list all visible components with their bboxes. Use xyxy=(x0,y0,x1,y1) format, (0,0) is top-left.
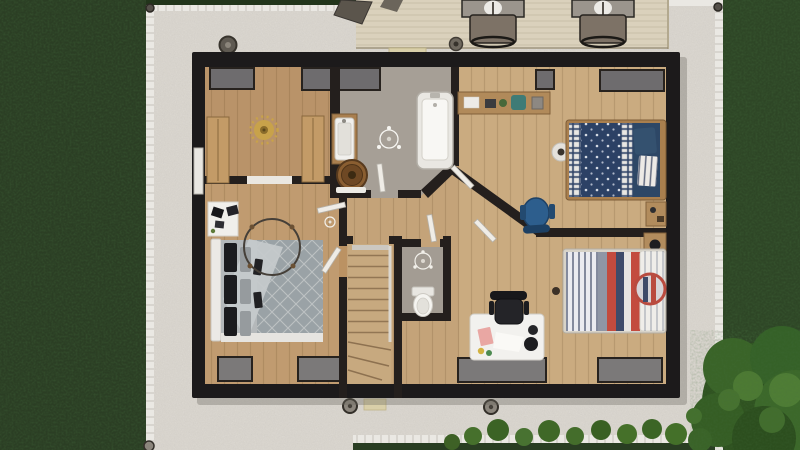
wc-light-center xyxy=(421,259,425,263)
bathtub-drain xyxy=(433,103,437,107)
stairs-landing xyxy=(352,245,389,250)
bathroom-light-dot xyxy=(397,145,401,149)
bush xyxy=(617,424,637,444)
cushion-stripe-navy xyxy=(643,277,648,302)
ring-clip xyxy=(291,264,296,269)
opening-wc-door xyxy=(421,239,440,247)
floorplan-screenshot xyxy=(0,0,800,450)
ring-clip xyxy=(248,264,253,269)
nightstand-item xyxy=(657,216,664,222)
attic-panel xyxy=(536,70,554,89)
bush xyxy=(538,420,560,442)
attic-panel xyxy=(218,357,252,381)
hall-light-center xyxy=(329,221,332,224)
stairs-floor xyxy=(348,244,391,384)
bed-stripe-pinzone-pattern xyxy=(566,252,598,331)
grass-texture-left xyxy=(0,0,146,450)
cushion-stripe-red xyxy=(651,275,656,303)
attic-panel xyxy=(302,68,380,90)
shelf-frame xyxy=(532,97,543,109)
nightstand-blue-room xyxy=(646,202,666,226)
shelf-box xyxy=(485,99,496,108)
tile-border-left xyxy=(146,5,154,450)
ring-clip xyxy=(250,225,255,230)
ring-clip xyxy=(290,225,295,230)
tile-border-top-right xyxy=(668,0,715,6)
pillow-black xyxy=(224,243,237,272)
wall-stair-stub-left xyxy=(339,236,353,244)
vent-cap-center xyxy=(225,42,231,48)
pillow-black xyxy=(224,275,237,304)
bed-stripe-red xyxy=(607,252,616,331)
pillow-black xyxy=(224,307,237,336)
round-rug-center xyxy=(558,149,565,156)
bush xyxy=(515,428,533,446)
grass-bottom-strip xyxy=(353,442,715,450)
attic-panel xyxy=(458,358,546,382)
wall-wc-east xyxy=(443,236,451,321)
toilet-seat xyxy=(417,298,429,314)
attic-panel xyxy=(598,358,662,382)
sunburst-light-dot xyxy=(263,129,266,132)
office-chair-black-arm xyxy=(524,301,529,315)
bathtub-faucet xyxy=(430,93,440,98)
bed-left-headboard xyxy=(211,239,221,341)
bed-blue-plaid-left-pattern xyxy=(569,123,581,197)
wall-stair-stub-right xyxy=(389,236,402,244)
scene-layers xyxy=(0,0,800,450)
bed-blue-plaid-right-pattern xyxy=(621,123,633,197)
bollard-light-4 xyxy=(146,4,154,12)
plant-dot xyxy=(211,229,215,233)
bush xyxy=(464,427,482,445)
bed-blue-pillow xyxy=(633,127,657,155)
office-chair-black-seat xyxy=(495,299,523,324)
pillow-gray xyxy=(240,311,251,336)
office-chair-blue-seat xyxy=(523,198,549,228)
deck-light-center xyxy=(454,42,459,47)
pillow-gray xyxy=(240,279,251,304)
wc-light-dot xyxy=(421,250,424,253)
bush xyxy=(566,427,584,445)
bed-blue-duvet-dots xyxy=(581,123,621,197)
tree-texture xyxy=(690,330,800,450)
shelf-books xyxy=(464,97,479,108)
bed-stripe-gray xyxy=(598,252,607,331)
attic-panel xyxy=(600,70,664,91)
window-left-wall xyxy=(194,148,203,194)
wc-light-dot xyxy=(413,265,416,268)
bath-mat xyxy=(336,187,366,193)
floor-dot xyxy=(552,287,560,295)
pillow-small xyxy=(253,292,263,309)
wc-light-dot xyxy=(429,265,432,268)
bathroom-light-center xyxy=(387,137,391,141)
desk-speaker xyxy=(528,325,538,335)
bed-stripe-white xyxy=(624,252,631,331)
desk-cup-green xyxy=(486,350,492,356)
bollard-light-5 xyxy=(714,3,722,11)
bush xyxy=(591,420,611,440)
bush xyxy=(444,434,460,450)
desk-lamp xyxy=(524,337,538,351)
bathroom-sink-basin xyxy=(338,123,351,155)
floorplan-render xyxy=(0,0,800,450)
attic-panel xyxy=(210,68,254,89)
bed-stripe-navy xyxy=(616,252,624,331)
bed-stripe-cushion xyxy=(635,274,665,304)
office-chair-black-arm xyxy=(489,301,494,315)
attic-panel xyxy=(298,357,340,381)
bollard-light-3 xyxy=(144,441,154,450)
book xyxy=(215,221,225,229)
wall-stair-west xyxy=(339,184,347,398)
nightstand-item xyxy=(650,207,656,213)
bathroom-light-dot xyxy=(387,126,391,130)
office-chair-blue-arm xyxy=(520,205,526,220)
bush xyxy=(665,423,687,445)
bush xyxy=(487,419,509,441)
bed-blue-cushion-stripes xyxy=(637,155,658,186)
bathroom-light-dot xyxy=(377,145,381,149)
bathroom-faucet xyxy=(342,119,346,123)
shelf-bottle xyxy=(499,99,507,107)
bathtub-basin xyxy=(422,99,448,160)
office-chair-blue-arm xyxy=(549,204,555,219)
bollard-light-2-core xyxy=(489,405,493,409)
threshold-dressing xyxy=(247,176,292,184)
laundry-basket-center xyxy=(348,171,356,179)
bush xyxy=(642,419,662,439)
shelf-plant xyxy=(511,95,526,110)
desk-cup-yellow xyxy=(478,348,484,354)
